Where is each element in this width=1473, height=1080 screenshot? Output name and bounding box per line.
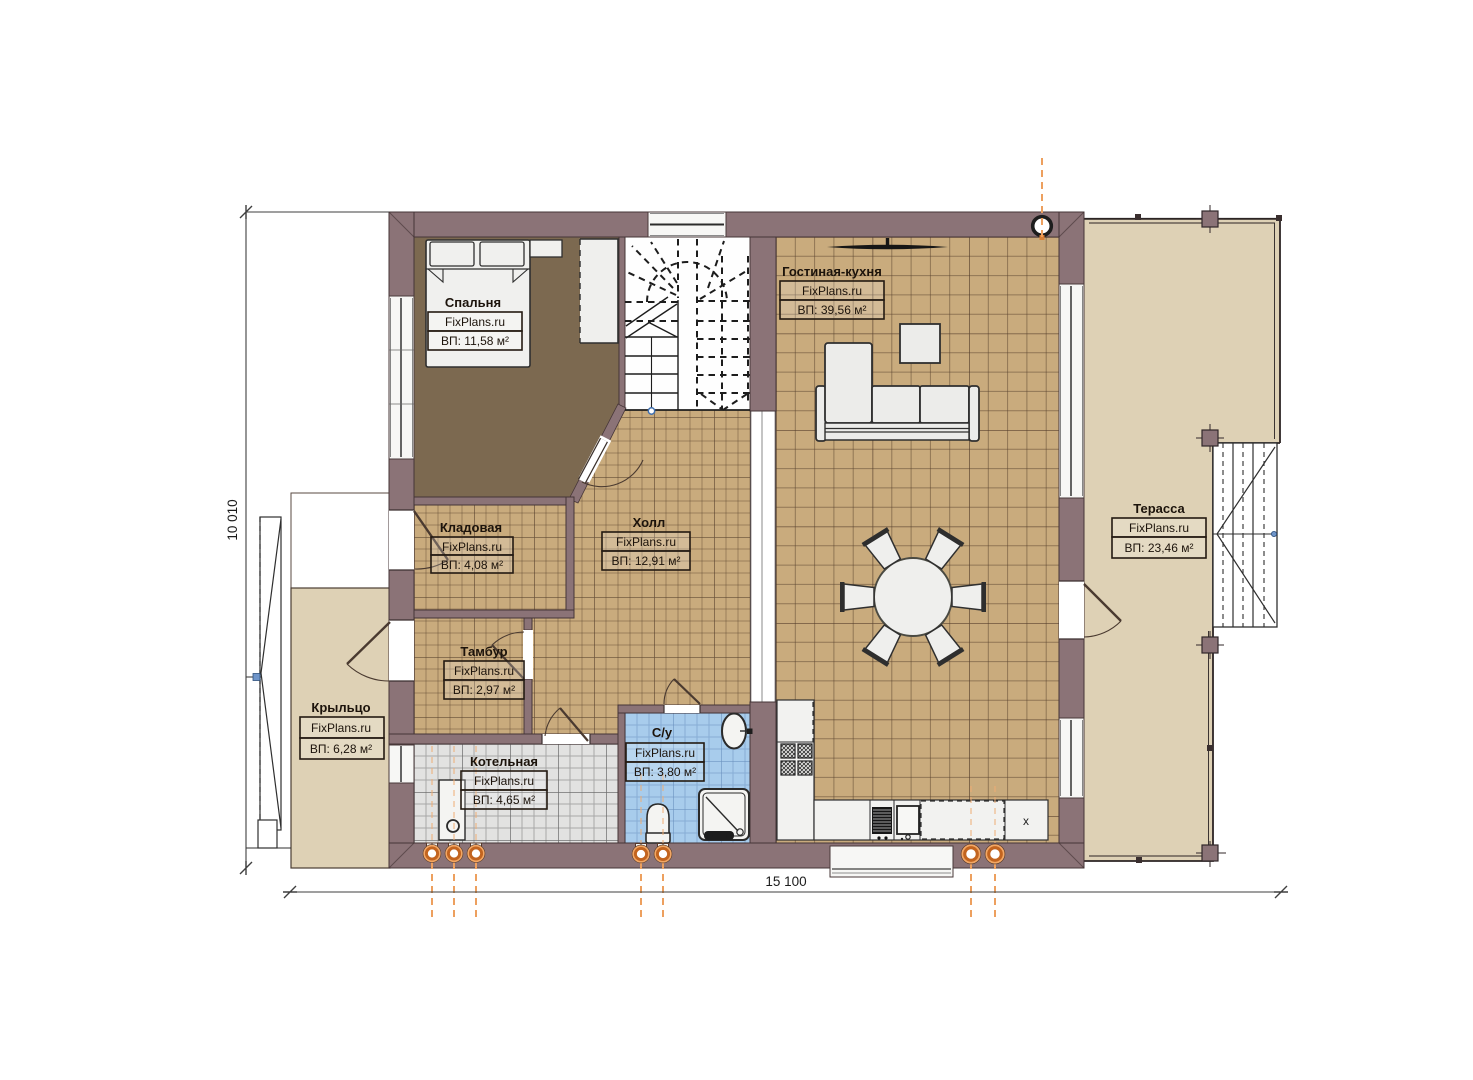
svg-text:15 100: 15 100 bbox=[765, 874, 806, 889]
svg-text:FixPlans.ru: FixPlans.ru bbox=[445, 315, 505, 329]
svg-text:FixPlans.ru: FixPlans.ru bbox=[311, 721, 371, 735]
svg-text:x: x bbox=[1023, 814, 1029, 828]
svg-text:Терасса: Терасса bbox=[1133, 501, 1185, 516]
svg-text:Тамбур: Тамбур bbox=[460, 644, 507, 659]
svg-text:ВП: 39,56 м²: ВП: 39,56 м² bbox=[798, 303, 867, 317]
svg-text:ВП: 11,58 м²: ВП: 11,58 м² bbox=[441, 334, 509, 348]
svg-text:ВП: 4,65 м²: ВП: 4,65 м² bbox=[473, 793, 535, 807]
svg-text:Крыльцо: Крыльцо bbox=[311, 700, 370, 715]
svg-text:FixPlans.ru: FixPlans.ru bbox=[1129, 521, 1189, 535]
svg-text:ВП: 12,91 м²: ВП: 12,91 м² bbox=[612, 554, 681, 568]
svg-text:Холл: Холл bbox=[633, 515, 666, 530]
svg-text:Спальня: Спальня bbox=[445, 295, 501, 310]
svg-text:FixPlans.ru: FixPlans.ru bbox=[802, 284, 862, 298]
svg-text:ВП: 2,97 м²: ВП: 2,97 м² bbox=[453, 683, 515, 697]
svg-text:ВП: 3,80 м²: ВП: 3,80 м² bbox=[634, 765, 696, 779]
svg-text:FixPlans.ru: FixPlans.ru bbox=[635, 746, 695, 760]
svg-text:Гостиная-кухня: Гостиная-кухня bbox=[782, 264, 882, 279]
svg-text:10 010: 10 010 bbox=[225, 499, 240, 540]
svg-text:ВП: 23,46 м²: ВП: 23,46 м² bbox=[1125, 541, 1194, 555]
svg-text:Котельная: Котельная bbox=[470, 754, 538, 769]
svg-text:FixPlans.ru: FixPlans.ru bbox=[616, 535, 676, 549]
svg-text:Кладовая: Кладовая bbox=[440, 520, 502, 535]
svg-text:FixPlans.ru: FixPlans.ru bbox=[454, 664, 514, 678]
svg-text:FixPlans.ru: FixPlans.ru bbox=[442, 540, 502, 554]
svg-text:С/у: С/у bbox=[652, 725, 673, 740]
svg-text:FixPlans.ru: FixPlans.ru bbox=[474, 774, 534, 788]
svg-text:ВП: 6,28 м²: ВП: 6,28 м² bbox=[310, 742, 372, 756]
svg-text:ВП: 4,08 м²: ВП: 4,08 м² bbox=[441, 558, 503, 572]
